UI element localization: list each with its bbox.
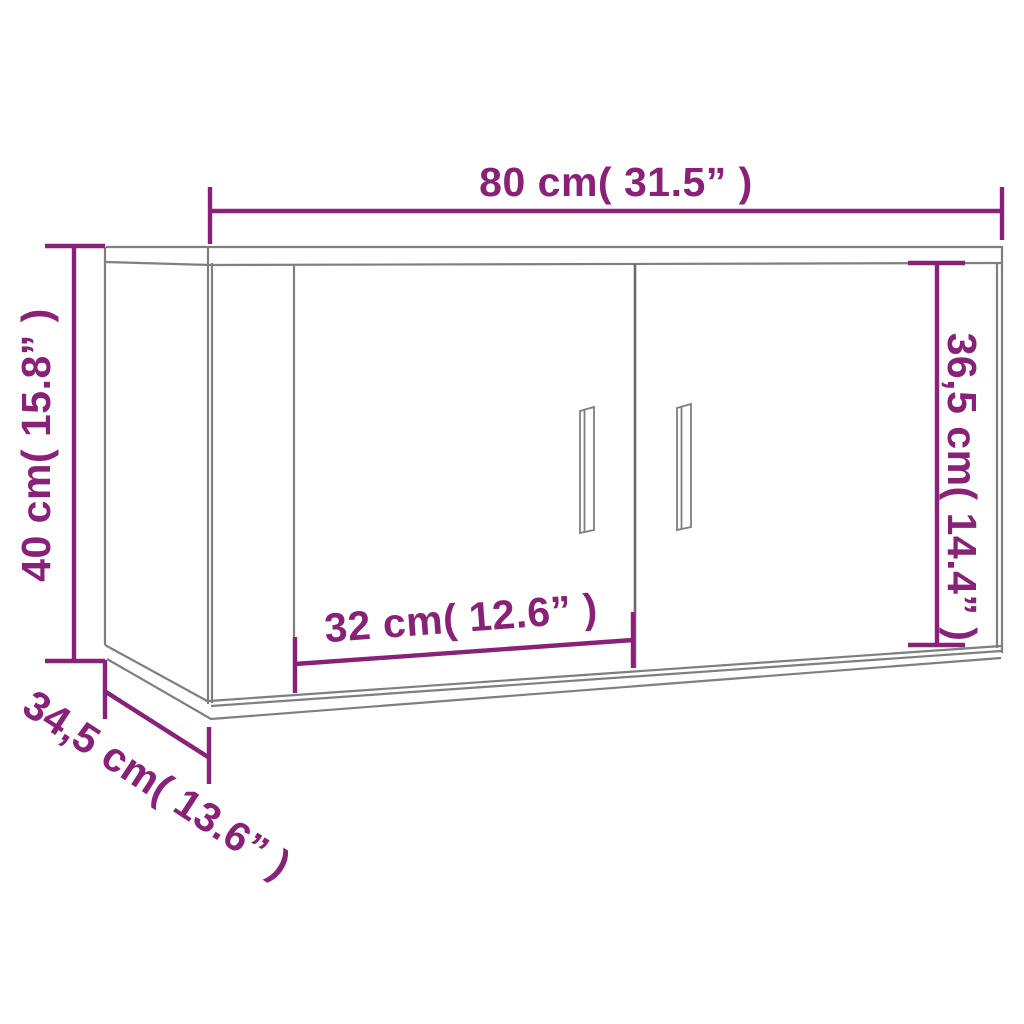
dimension-labels: 80 cm( 31.5” ) 40 cm( 15.8” ) 36,5 cm( 1… <box>13 159 985 888</box>
depth-dimension-label: 34,5 cm( 13.6” ) <box>15 681 299 888</box>
right-door-handle <box>677 404 691 530</box>
bottom-panel-front-edge <box>211 651 1001 706</box>
top-panel-bottom-edge <box>106 262 1002 265</box>
side-panel-under-edge <box>107 658 1001 719</box>
left-door-handle <box>580 407 594 533</box>
door-bottom-edge <box>209 646 1001 701</box>
cabinet-drawing <box>105 246 1002 719</box>
diagram-canvas: 80 cm( 31.5” ) 40 cm( 15.8” ) 36,5 cm( 1… <box>0 0 1024 1024</box>
cabinet-dimension-diagram: 80 cm( 31.5” ) 40 cm( 15.8” ) 36,5 cm( 1… <box>0 0 1024 1024</box>
side-panel-bottom-edge <box>105 645 209 702</box>
width-dimension-label: 80 cm( 31.5” ) <box>479 159 753 205</box>
door-height-dimension-label: 36,5 cm( 14.4” ) <box>939 333 985 642</box>
height-dimension-label: 40 cm( 15.8” ) <box>13 308 59 582</box>
door-width-dimension-label: 32 cm( 12.6” ) <box>323 585 599 651</box>
